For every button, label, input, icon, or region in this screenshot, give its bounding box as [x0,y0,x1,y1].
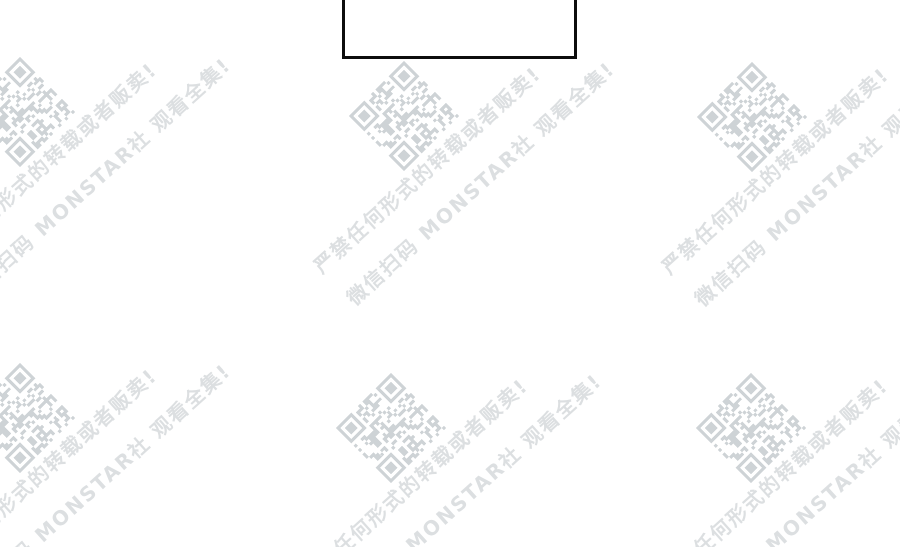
comic-page: 严禁任何形式的转载或者贩卖! 微信扫码 MONSTAR社 观看全集! 严禁任何形… [0,0,900,547]
watermark-layer: 严禁任何形式的转载或者贩卖! 微信扫码 MONSTAR社 观看全集! 严禁任何形… [0,0,900,547]
comic-panel-frame [342,0,577,59]
